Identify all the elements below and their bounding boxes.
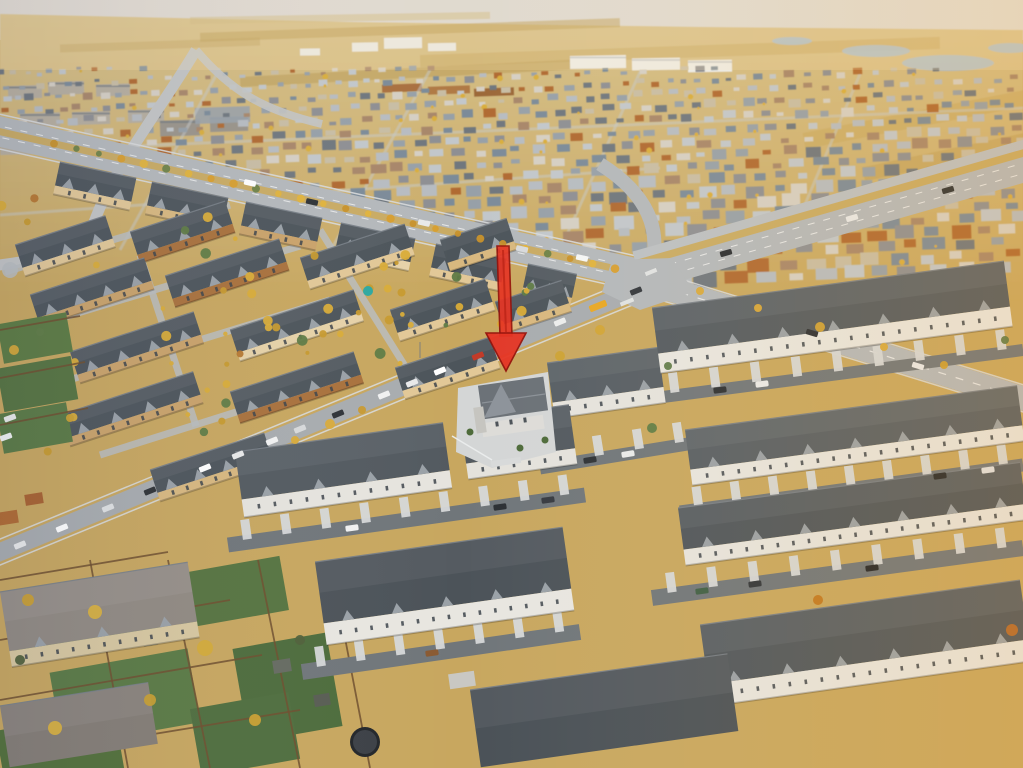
aerial-photo (0, 0, 1023, 768)
golden-hour-tint (0, 0, 1023, 768)
horizon-glow (0, 0, 1023, 70)
aerial-photo-canvas (0, 0, 1023, 768)
lighting-overlay (0, 0, 1023, 768)
